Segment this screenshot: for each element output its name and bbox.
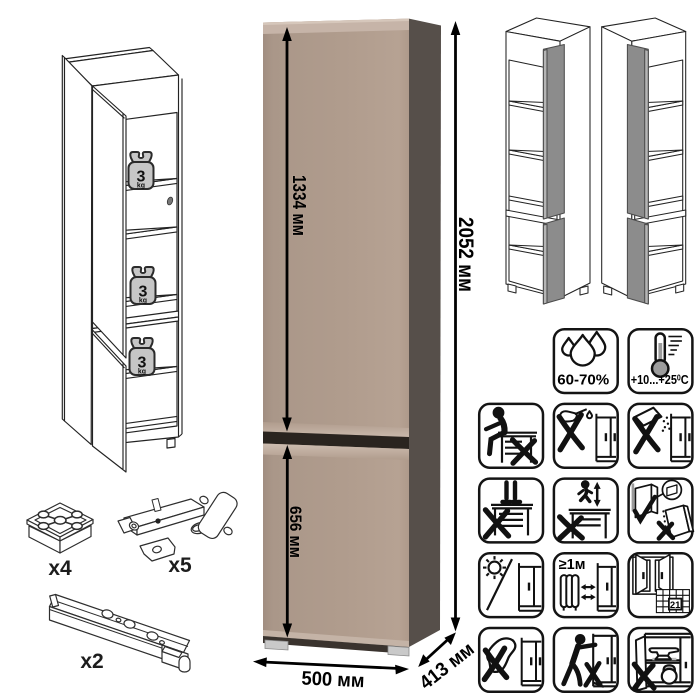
svg-text:656 мм: 656 мм [286,506,305,558]
svg-text:x2: x2 [80,650,103,673]
svg-text:1334 мм: 1334 мм [289,175,309,236]
svg-text:2052 мм: 2052 мм [454,217,478,292]
svg-text:500 мм: 500 мм [301,667,365,692]
svg-text:kg: kg [138,369,146,376]
svg-text:x5: x5 [168,554,192,577]
svg-text:413 мм: 413 мм [415,638,478,694]
svg-text:21: 21 [670,600,681,611]
svg-text:x4: x4 [48,557,72,580]
svg-text:kg: kg [139,298,147,305]
svg-text:kg: kg [137,183,145,190]
svg-text:60-70%: 60-70% [557,372,609,389]
svg-text:+10...+250C: +10...+250C [631,373,689,387]
svg-text:≥1м: ≥1м [559,557,586,573]
